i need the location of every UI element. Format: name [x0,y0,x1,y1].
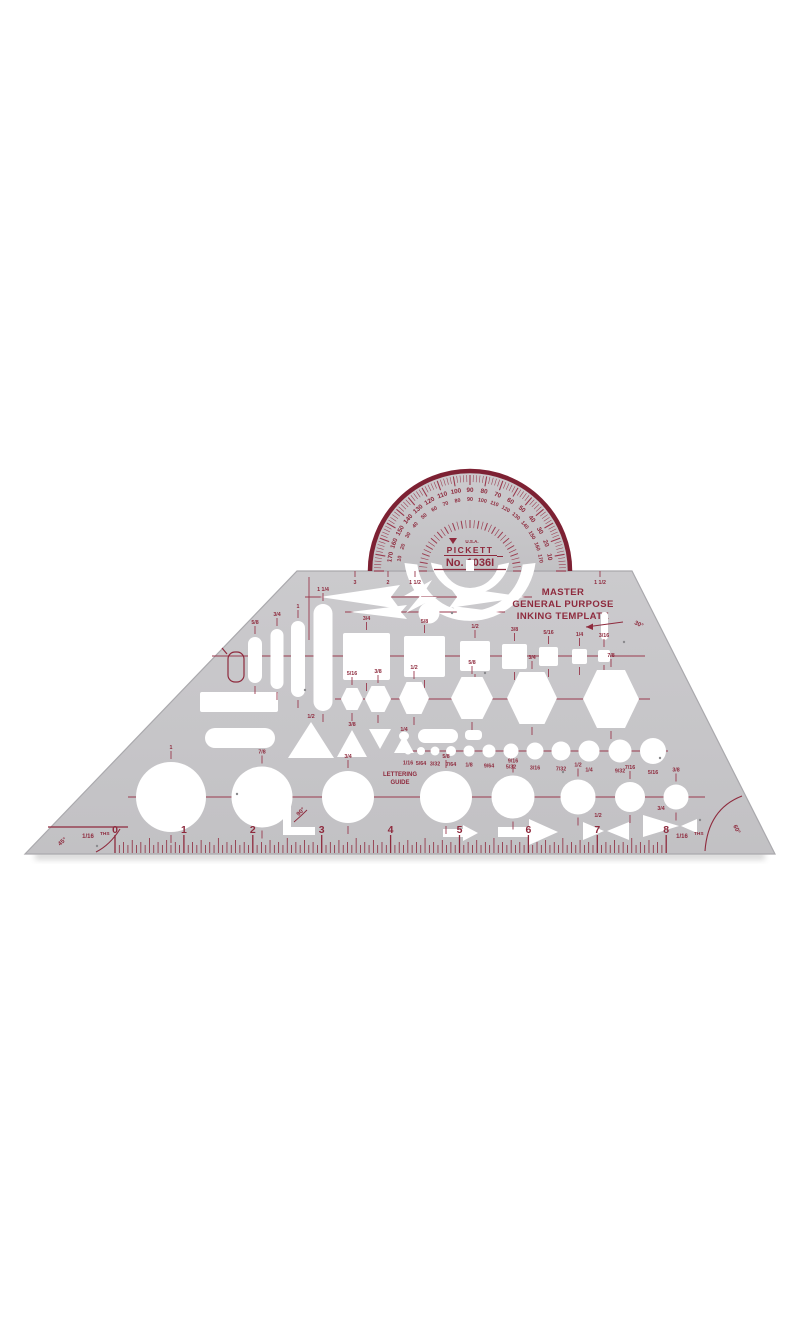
size-fraction-label: 3/4 [363,616,370,622]
size-fraction-label: 7/64 [446,762,456,768]
ruler-number: 0 [112,824,118,836]
size-fraction-label: 3/16 [530,766,540,772]
size-fraction-label: 1 1/4 [317,587,329,593]
size-fraction-label: 1 [297,604,300,610]
pill-slot-cutout [205,728,275,748]
size-fraction-label: 5/8 [251,620,258,626]
speck [96,845,98,847]
small-circle-cutout [504,744,519,759]
size-fraction-label: 1/2 [574,763,581,769]
size-fraction-label: 1/2 [307,714,314,720]
size-fraction-label: 3 [354,580,357,586]
size-fraction-label: 9/32 [615,769,625,775]
scale-unit-right: THS [694,831,704,837]
dash-cutout [465,730,482,740]
large-circle-cutout [136,762,206,832]
size-fraction-label: 3/4 [528,655,535,661]
protractor-degree-label: 90 [466,487,474,494]
product-photo: 1020304050607080901001101201301401501601… [0,0,800,1333]
square-cutout [539,647,558,666]
speck [451,612,453,614]
size-fraction-label: 2 [387,580,390,586]
protractor-degree-label-inner: 10 [397,555,404,562]
small-circle-cutout [483,745,496,758]
bar-slot-cutout [271,629,284,689]
size-fraction-label: 5/8 [442,754,449,760]
size-fraction-label: 5/16 [543,630,553,636]
square-cutout [572,649,587,664]
size-fraction-label: 7/8 [607,653,614,659]
made-in-label: U.S.A. [465,539,478,544]
size-fraction-label: 9/16 [508,759,518,765]
lettering-guide-line-1: LETTERING [383,772,417,778]
small-circle-cutout [527,743,544,760]
small-circle-cutout [640,738,666,764]
ruler-number: 5 [457,824,463,836]
ruler-number: 1 [181,824,187,836]
ruler-number: 6 [525,824,531,836]
size-fraction-label: 3/8 [511,627,518,633]
size-fraction-label: 1/4 [585,768,592,774]
large-circle-cutout [420,771,472,823]
bar-slot-cutout [291,621,305,697]
bar-slot-cutout [248,637,262,683]
large-circle-cutout [322,771,374,823]
ruler-number: 2 [250,824,256,836]
title-line-1: MASTER [542,587,585,598]
square-cutout [460,641,490,671]
speck [623,641,625,643]
protractor-degree-label-inner: 80 [454,498,461,505]
title-line-3: INKING TEMPLATE [517,611,609,622]
large-circle-cutout [492,776,535,819]
large-circle-cutout [232,767,293,828]
speck [236,793,238,795]
rectangle-slot-cutout [200,692,278,712]
large-circle-cutout [664,785,689,810]
protractor-degree-label-inner: 90 [467,497,473,503]
size-fraction-label: 5/16 [347,671,357,677]
size-fraction-label: 7/16 [625,765,635,771]
size-fraction-label: 1 1/2 [594,580,606,586]
size-fraction-label: 3/8 [374,669,381,675]
size-fraction-label: 5/64 [416,761,426,767]
size-fraction-label: 3/4 [344,754,351,760]
small-circle-cutout [609,740,632,763]
size-fraction-label: 5/32 [506,765,516,771]
speck [699,819,701,821]
size-fraction-label: 3/8 [348,722,355,728]
short-pill-cutout [418,729,458,743]
small-circle-cutout [405,748,412,755]
size-fraction-label: 1/2 [410,665,417,671]
ruler-number: 3 [319,824,325,836]
scale-fraction-right: 1/16 [676,834,688,840]
speck [304,689,306,691]
small-circle-cutout [579,741,600,762]
size-fraction-label: 1/4 [400,727,407,733]
ruler-number: 8 [663,824,669,836]
small-circle-cutout [464,746,475,757]
size-fraction-label: 3/4 [273,612,280,618]
ruler-number: 4 [388,824,394,836]
bar-slot-cutout [314,604,333,711]
size-fraction-label: 1/16 [403,761,413,767]
small-circle-cutout [431,747,440,756]
small-circle-cutout [552,742,571,761]
size-fraction-label: 5/16 [648,770,658,776]
speck [484,672,486,674]
size-fraction-label: 1/2 [594,813,601,819]
size-fraction-label: 1/4 [576,632,583,638]
title-line-2: GENERAL PURPOSE [512,599,613,610]
scale-fraction-left: 1/16 [82,834,94,840]
lettering-guide-line-2: GUIDE [390,780,409,786]
size-fraction-label: 5/8 [421,619,428,625]
size-fraction-label: 3/16 [599,633,609,639]
size-fraction-label: 1/2 [471,624,478,630]
size-fraction-label: 9/64 [484,764,494,770]
small-circle-cutout [417,747,425,755]
large-circle-cutout [561,780,596,815]
speck [659,757,661,759]
size-fraction-label: 1 1/2 [409,580,421,586]
large-circle-cutout [615,782,645,812]
size-fraction-label: 3/8 [672,768,679,774]
size-fraction-label: 1 [170,745,173,751]
size-fraction-label: 5/8 [468,660,475,666]
ruler-number: 7 [594,824,600,836]
size-fraction-label: 1/8 [465,763,472,769]
size-fraction-label: 7/32 [556,767,566,773]
brand-label: PICKETT [447,545,494,555]
protractor-base-notch [466,560,474,571]
scale-unit-left: THS [100,831,110,837]
drafting-template-image: 1020304050607080901001101201301401501601… [0,0,800,1333]
square-cutout [502,644,527,669]
size-fraction-label: 7/8 [258,750,265,756]
size-fraction-label: 3/4 [657,806,664,812]
size-fraction-label: 3/32 [430,762,440,768]
